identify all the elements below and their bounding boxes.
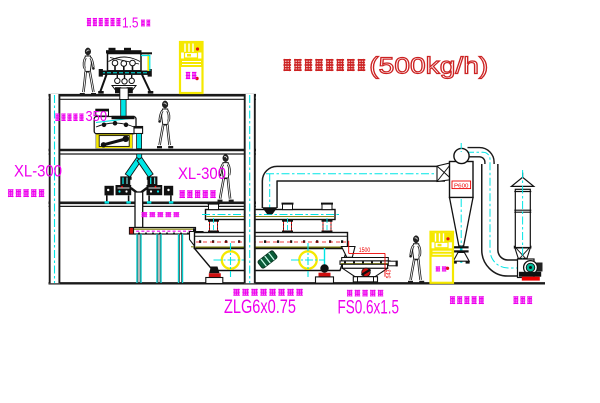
svg-text:(500kg/h): (500kg/h) [369, 53, 488, 79]
svg-text:350: 350 [86, 109, 108, 125]
svg-text:XL-300: XL-300 [14, 163, 62, 181]
svg-text:1.5: 1.5 [122, 15, 139, 32]
svg-text:543: 543 [387, 269, 393, 279]
svg-text:ZLG6x0.75: ZLG6x0.75 [224, 297, 296, 318]
svg-text:XL-300: XL-300 [178, 165, 226, 183]
svg-text:FS0.6x1.5: FS0.6x1.5 [338, 298, 400, 319]
svg-text:1500: 1500 [359, 248, 371, 254]
svg-text:P600: P600 [454, 183, 469, 189]
